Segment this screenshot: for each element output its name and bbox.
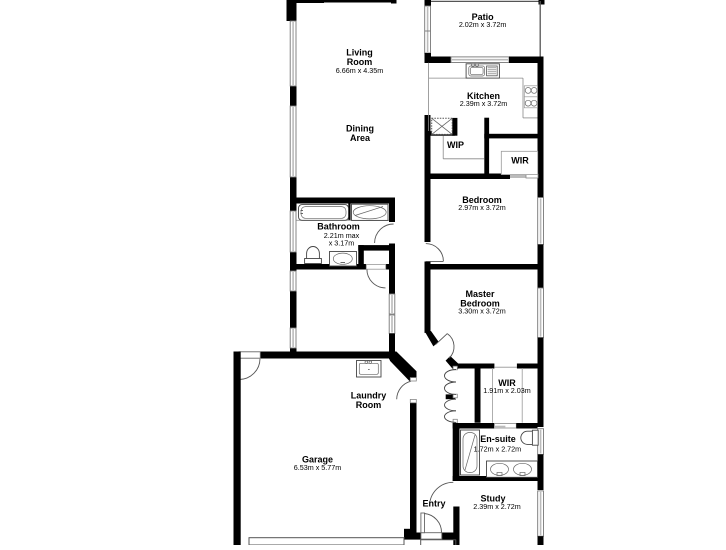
svg-text:x 3.17m: x 3.17m: [329, 239, 355, 248]
svg-text:Bathroom: Bathroom: [317, 221, 360, 231]
svg-text:2.02m x 3.72m: 2.02m x 3.72m: [459, 20, 507, 29]
svg-text:6.66m x 4.35m: 6.66m x 4.35m: [336, 66, 384, 75]
svg-text:Dining: Dining: [346, 123, 374, 133]
svg-text:1.91m x 2.03m: 1.91m x 2.03m: [483, 386, 531, 395]
svg-text:1.72m x 2.72m: 1.72m x 2.72m: [474, 444, 522, 453]
svg-text:Room: Room: [356, 400, 382, 410]
svg-text:2.39m x 3.72m: 2.39m x 3.72m: [460, 99, 508, 108]
svg-text:En-suite: En-suite: [480, 434, 516, 444]
svg-text:Living: Living: [346, 47, 373, 57]
svg-text:3.30m x 3.72m: 3.30m x 3.72m: [458, 307, 506, 316]
svg-text:WIP: WIP: [447, 140, 464, 150]
svg-text:2.39m x 2.72m: 2.39m x 2.72m: [473, 502, 521, 511]
svg-text:Area: Area: [350, 133, 371, 143]
svg-text:2.97m x 3.72m: 2.97m x 3.72m: [458, 203, 506, 212]
svg-text:6.53m x 5.77m: 6.53m x 5.77m: [294, 463, 342, 472]
svg-text:Entry: Entry: [422, 499, 445, 509]
svg-text:WIR: WIR: [511, 156, 529, 166]
